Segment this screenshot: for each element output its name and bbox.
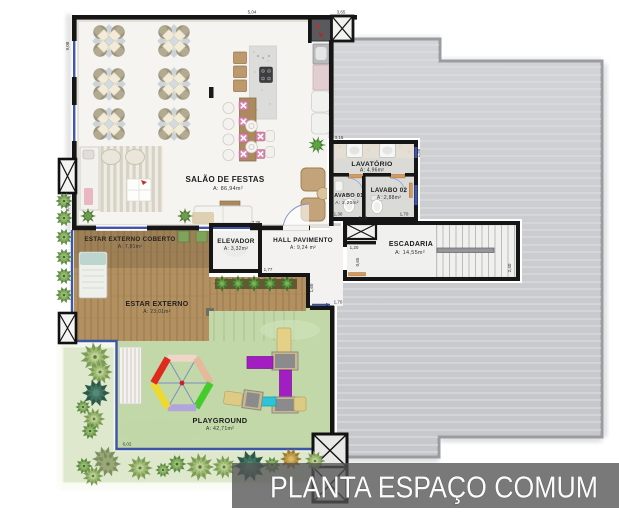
svg-text:8,93: 8,93 bbox=[65, 202, 70, 211]
svg-text:PLAYGROUND: PLAYGROUND bbox=[193, 416, 248, 425]
svg-text:A: 2,88m²: A: 2,88m² bbox=[377, 195, 401, 201]
svg-text:3,65: 3,65 bbox=[337, 10, 346, 15]
svg-text:HALL PAVIMENTO: HALL PAVIMENTO bbox=[273, 237, 333, 244]
svg-text:ESCADARIA: ESCADARIA bbox=[389, 241, 433, 248]
svg-text:A: 9,24 m²: A: 9,24 m² bbox=[290, 245, 316, 251]
svg-text:ELEVADOR: ELEVADOR bbox=[217, 238, 255, 245]
svg-text:1,70: 1,70 bbox=[400, 212, 409, 217]
svg-text:ESTAR EXTERNO COBERTO: ESTAR EXTERNO COBERTO bbox=[85, 236, 176, 243]
svg-text:7,28: 7,28 bbox=[252, 220, 261, 225]
svg-text:2,40: 2,40 bbox=[507, 263, 512, 272]
svg-text:6,02: 6,02 bbox=[123, 442, 132, 447]
svg-text:0,65: 0,65 bbox=[355, 257, 360, 266]
svg-text:1,58: 1,58 bbox=[416, 148, 421, 157]
svg-text:1,77: 1,77 bbox=[264, 267, 273, 272]
svg-text:A: 3,32m²: A: 3,32m² bbox=[224, 246, 248, 252]
svg-text:A: 42,71m²: A: 42,71m² bbox=[206, 426, 234, 432]
svg-text:9,08: 9,08 bbox=[65, 41, 70, 50]
svg-text:1,70: 1,70 bbox=[334, 300, 343, 305]
svg-text:5,04: 5,04 bbox=[248, 10, 257, 15]
svg-text:LAVABO 02: LAVABO 02 bbox=[371, 187, 408, 194]
svg-text:3,15: 3,15 bbox=[335, 135, 344, 140]
svg-text:LAVABO 01: LAVABO 01 bbox=[330, 193, 363, 199]
svg-text:1,60: 1,60 bbox=[309, 283, 314, 292]
svg-text:A: 4,96m²: A: 4,96m² bbox=[360, 168, 384, 174]
svg-text:A: 14,55m²: A: 14,55m² bbox=[395, 250, 425, 256]
svg-text:PLANTA ESPAÇO COMUM: PLANTA ESPAÇO COMUM bbox=[270, 471, 598, 505]
svg-text:1,30: 1,30 bbox=[334, 212, 343, 217]
svg-text:A: 7,81m²: A: 7,81m² bbox=[118, 244, 142, 250]
svg-text:A: 86,94m²: A: 86,94m² bbox=[213, 186, 243, 192]
svg-text:5,16: 5,16 bbox=[359, 216, 368, 221]
svg-text:A: 23,01m²: A: 23,01m² bbox=[143, 309, 170, 315]
svg-text:ESTAR EXTERNO: ESTAR EXTERNO bbox=[126, 301, 189, 308]
svg-text:A: 2,20m²: A: 2,20m² bbox=[335, 200, 359, 206]
svg-text:SALÃO DE FESTAS: SALÃO DE FESTAS bbox=[185, 175, 264, 184]
svg-text:1,20: 1,20 bbox=[350, 245, 359, 250]
